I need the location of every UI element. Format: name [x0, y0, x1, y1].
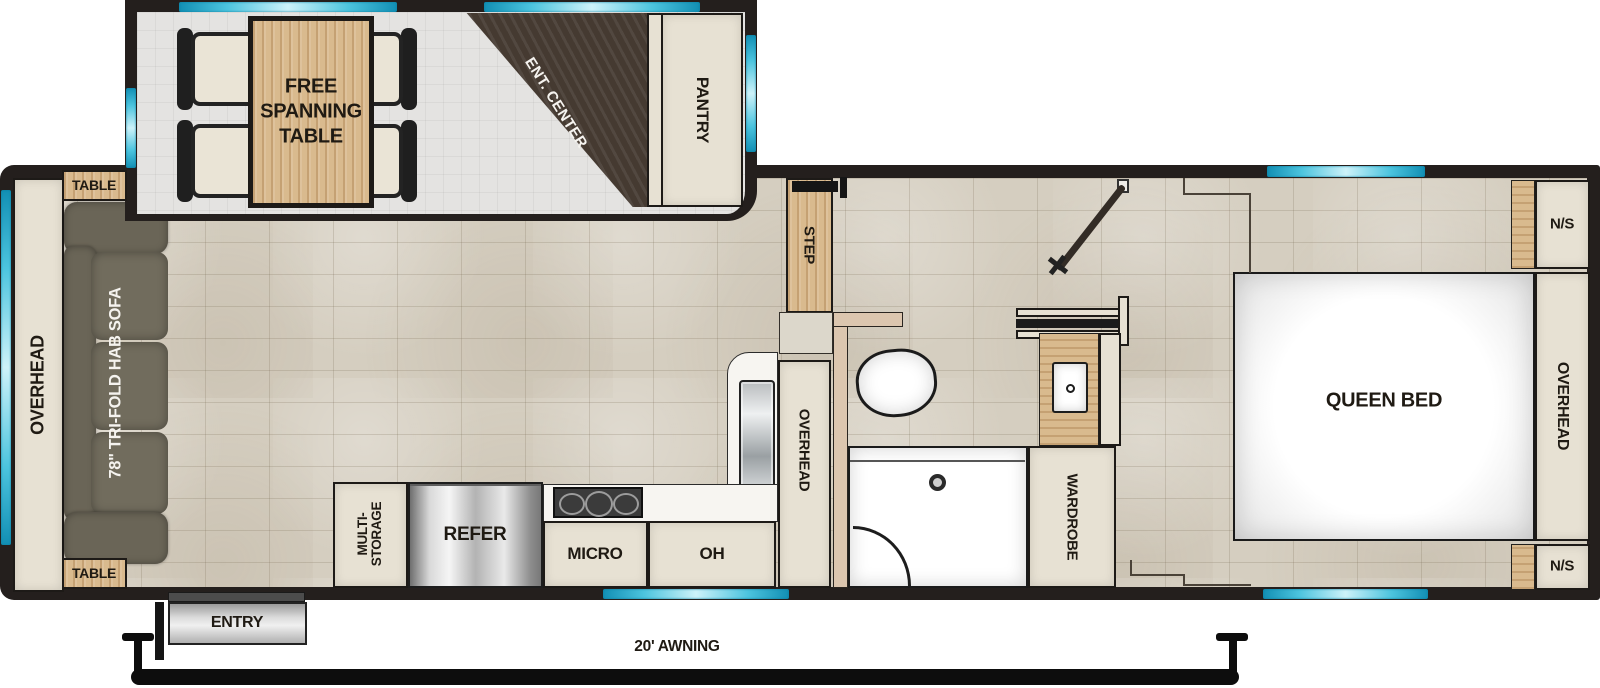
step-landing	[779, 312, 833, 354]
step-label: STEP	[801, 226, 818, 264]
vanity-side-panel	[1099, 333, 1121, 446]
floorplan-canvas: OVERHEAD TABLE TABLE 78" TRI-FOLD HAB SO…	[0, 0, 1600, 688]
burner-icon	[613, 493, 639, 515]
window	[1267, 166, 1425, 177]
awning-label: 20' AWNING	[634, 638, 719, 656]
faucet-icon	[1066, 384, 1075, 393]
overhead-left-label: OVERHEAD	[28, 335, 49, 435]
sofa-label: 78" TRI-FOLD HAB SOFA	[107, 287, 126, 478]
nightstand-bottom-label: N/S	[1550, 558, 1574, 575]
micro-label: MICRO	[567, 544, 622, 564]
shower-curb-curve	[853, 526, 911, 586]
overhead-kitchen-label: OVERHEAD	[796, 409, 813, 492]
shower	[848, 446, 1028, 588]
oh-label: OH	[700, 544, 725, 564]
sliding-door-track	[1016, 308, 1122, 317]
dinette-chair-back	[401, 120, 417, 202]
burner-icon	[585, 491, 613, 517]
table-bottom-label: TABLE	[72, 565, 116, 581]
bathroom-wall	[833, 312, 848, 588]
shower-drain	[929, 474, 946, 491]
platform-line	[1183, 584, 1251, 586]
pantry-label: PANTRY	[692, 77, 712, 143]
sliding-door-panel	[1016, 319, 1122, 328]
nightstand-top-label: N/S	[1550, 216, 1574, 233]
burner-icon	[559, 493, 585, 515]
window	[179, 2, 397, 12]
sofa-cushion	[91, 432, 168, 514]
shower-pan-lip	[850, 460, 1025, 462]
awning-bar	[131, 669, 1239, 685]
window	[746, 35, 756, 152]
multi-storage-label: MULTI-STORAGE	[356, 487, 384, 581]
sofa-cushion	[91, 342, 168, 430]
platform-line	[1130, 574, 1185, 576]
sofa-armrest-bottom	[64, 512, 168, 564]
window	[1, 190, 11, 545]
dinette-table-label: FREE SPANNING TABLE	[249, 75, 373, 150]
wardrobe-label: WARDROBE	[1064, 474, 1081, 561]
sofa-cushion	[91, 252, 168, 340]
overhead-bedroom-label: OVERHEAD	[1553, 362, 1571, 450]
platform-line	[1183, 193, 1251, 195]
entry-threshold	[168, 592, 305, 602]
window	[484, 2, 700, 12]
kitchen-sink	[739, 380, 775, 490]
entry-door	[155, 602, 164, 660]
headboard-wood-strip	[1511, 544, 1535, 590]
door-frame-tick	[840, 177, 847, 198]
entry-label: ENTRY	[211, 614, 263, 632]
platform-line	[1249, 193, 1251, 273]
bathroom-wall-stub	[833, 312, 903, 327]
dinette-chair-back	[401, 28, 417, 110]
window	[1263, 589, 1428, 599]
window	[126, 88, 136, 168]
refer-label: REFER	[444, 524, 507, 546]
entry-door-bar	[792, 181, 838, 192]
headboard-wood-strip	[1511, 180, 1535, 269]
queen-bed-label: QUEEN BED	[1326, 390, 1442, 413]
cooktop	[553, 487, 643, 518]
table-top-label: TABLE	[72, 177, 116, 193]
window	[603, 589, 789, 599]
